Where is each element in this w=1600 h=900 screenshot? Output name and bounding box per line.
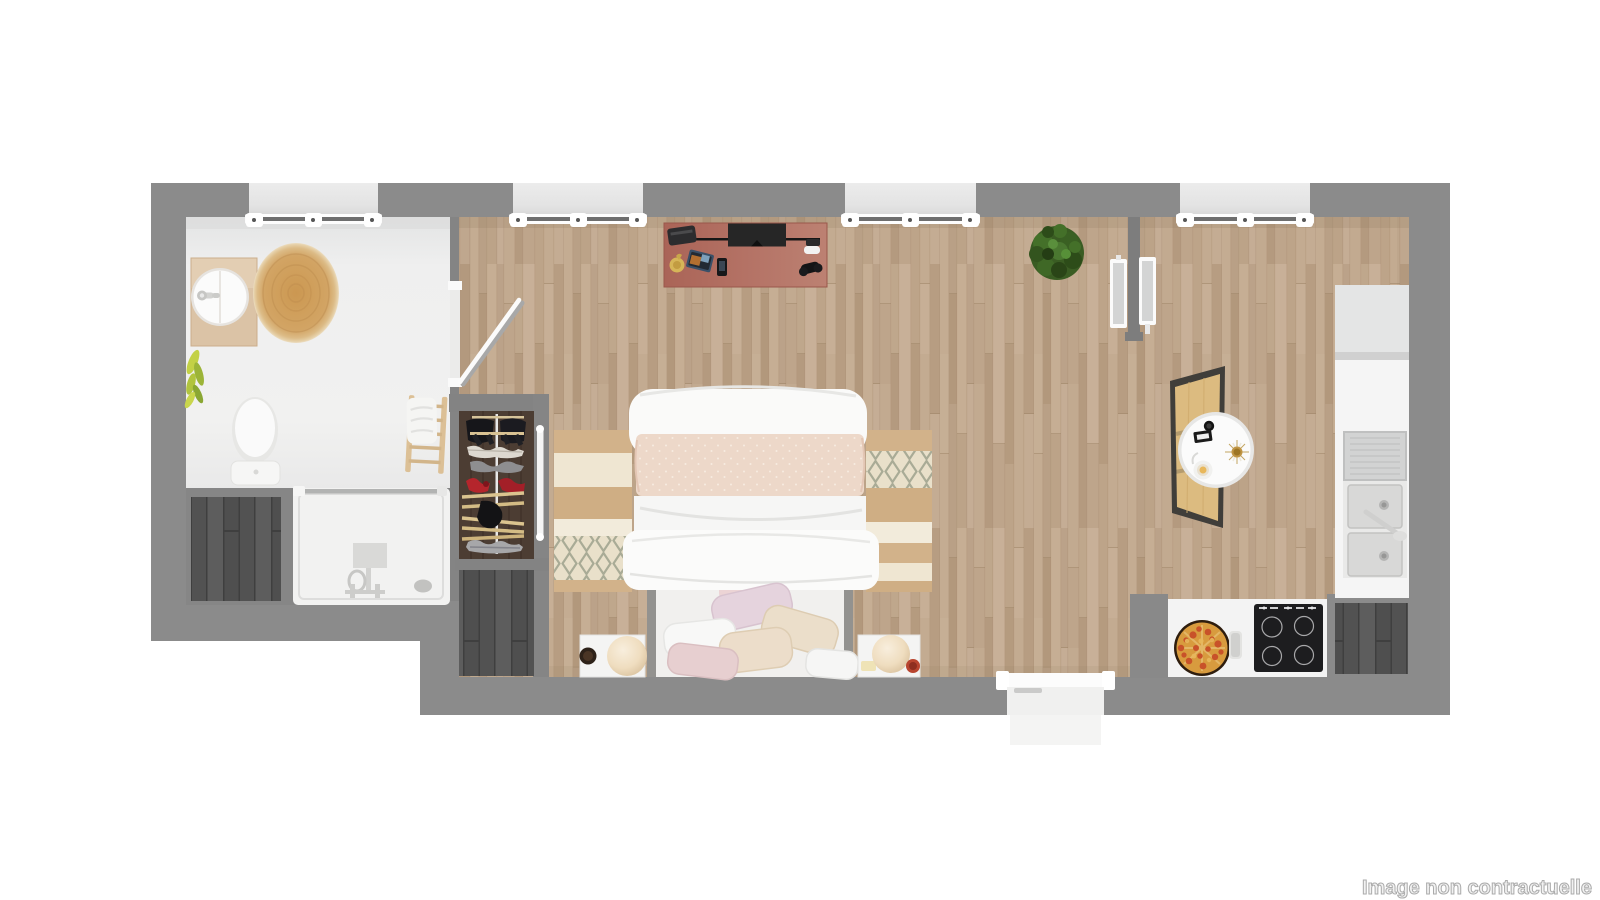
svg-text:Image non contractuelle: Image non contractuelle [1362,877,1592,899]
